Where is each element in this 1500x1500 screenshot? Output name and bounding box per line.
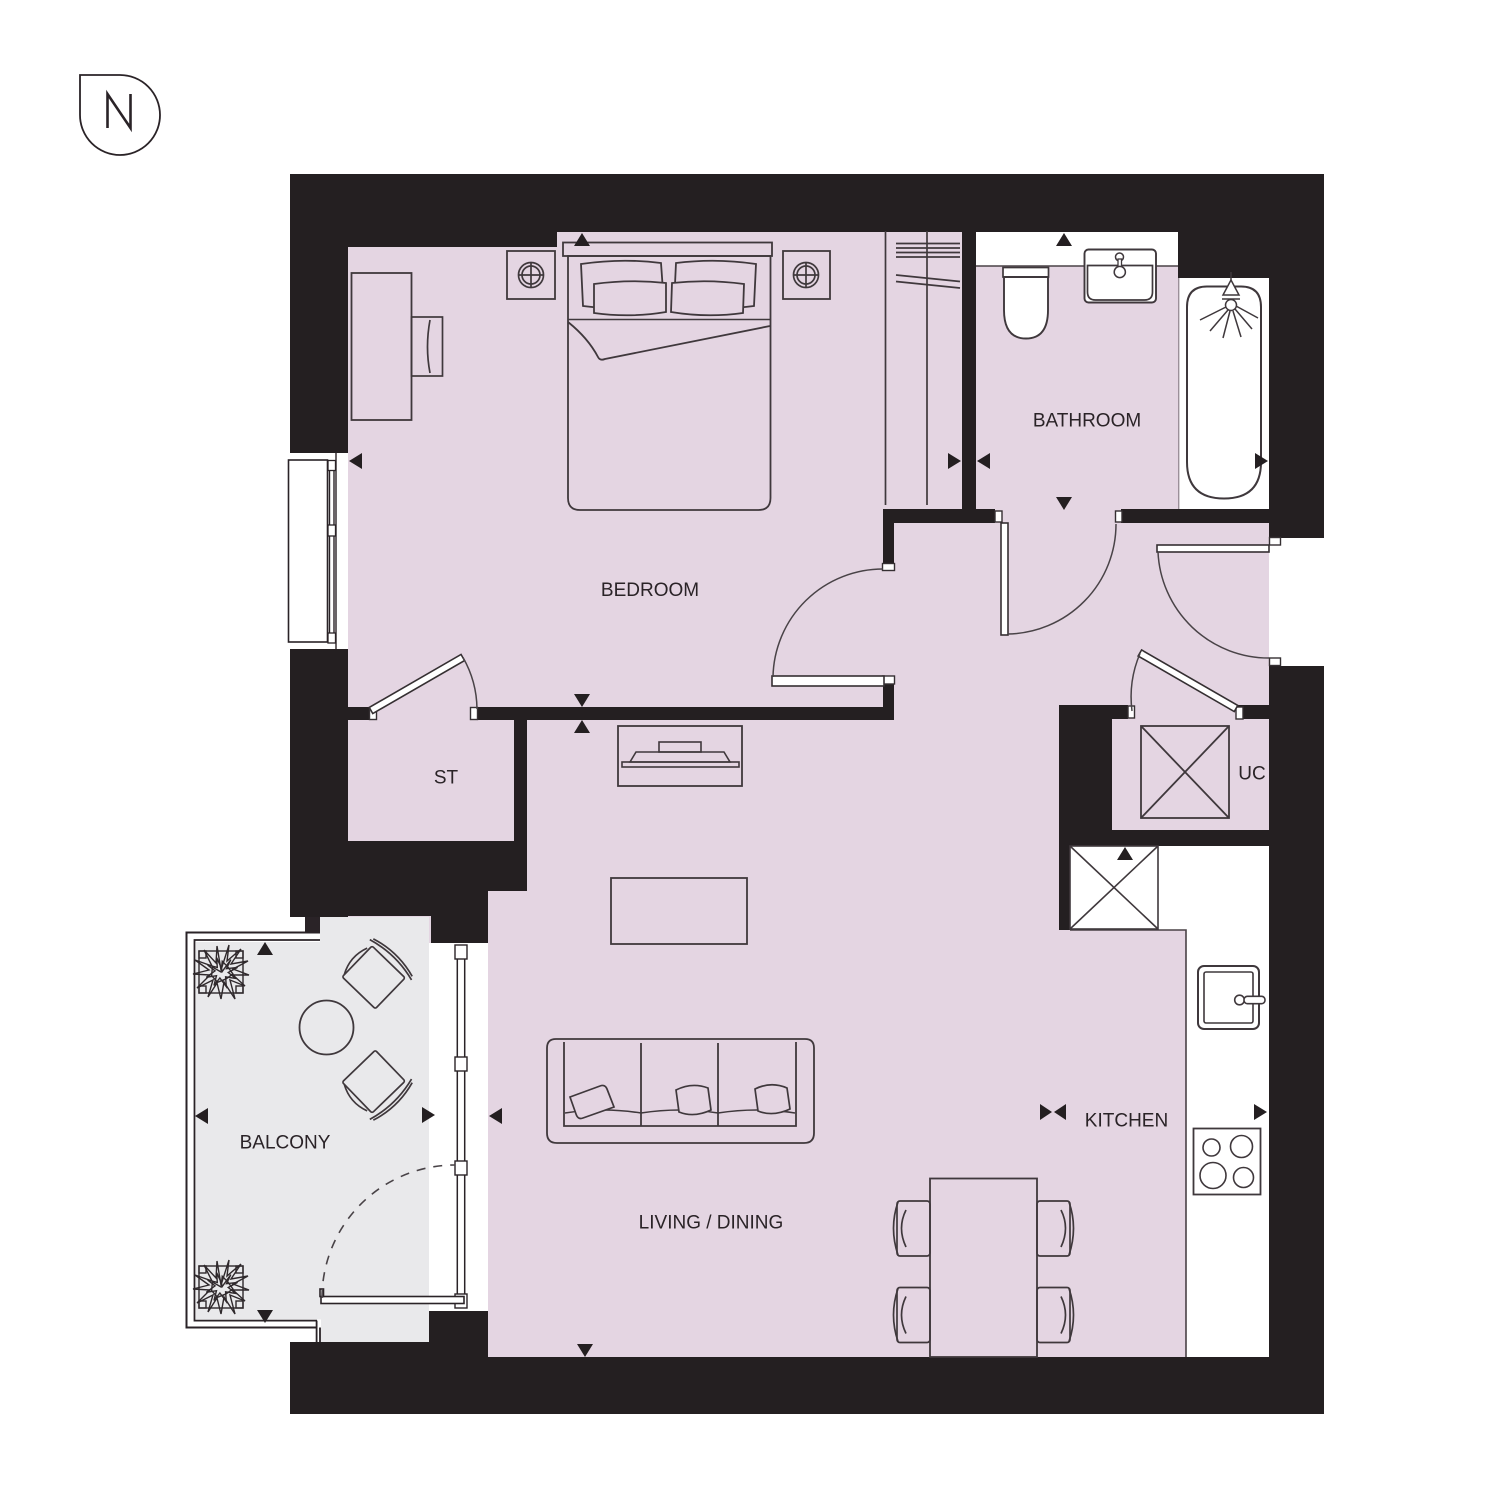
svg-text:UC: UC: [1238, 764, 1265, 785]
svg-text:KITCHEN: KITCHEN: [1085, 1111, 1168, 1132]
svg-text:BEDROOM: BEDROOM: [601, 580, 699, 601]
svg-text:LIVING / DINING: LIVING / DINING: [639, 1213, 784, 1234]
svg-text:BALCONY: BALCONY: [240, 1133, 331, 1154]
svg-text:ST: ST: [434, 768, 459, 789]
svg-text:BATHROOM: BATHROOM: [1033, 411, 1141, 432]
